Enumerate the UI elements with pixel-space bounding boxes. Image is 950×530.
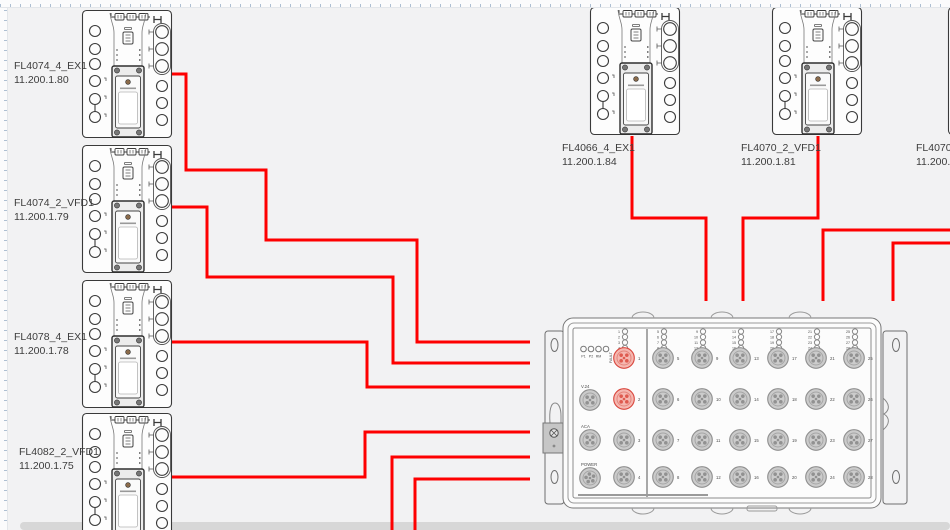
switch-port xyxy=(580,468,601,489)
device-ip: 11.200.1.80 xyxy=(14,73,87,87)
switch-text: P1 xyxy=(581,355,585,359)
horizontal-ruler xyxy=(0,0,950,8)
switch-text: 26 xyxy=(846,335,850,339)
switch-text: 21 xyxy=(808,330,812,334)
diagram-svg: P1P2RMFAULTV.24ACAPOWER12341234567856789… xyxy=(0,0,950,530)
device-ip: 11.200.1.78 xyxy=(14,344,87,358)
device-shape[interactable] xyxy=(83,11,172,138)
device-ip: 11.200.1.81 xyxy=(741,155,821,169)
switch-text: 25 xyxy=(846,330,850,334)
switch-text: 27 xyxy=(846,341,850,345)
cable[interactable] xyxy=(632,136,706,301)
switch-port xyxy=(580,430,601,451)
device-shape[interactable] xyxy=(591,8,680,135)
cable[interactable] xyxy=(415,479,530,530)
switch-text: 21 xyxy=(830,356,835,361)
device-label[interactable]: FL4074_2_VFD1 11.200.1.79 xyxy=(14,196,94,224)
switch-text: 22 xyxy=(830,397,835,402)
switch-text: 24 xyxy=(830,475,835,480)
switch-port xyxy=(580,390,601,411)
switch-text: ACA xyxy=(581,424,590,429)
switch-text: 3 xyxy=(618,341,620,345)
device-label[interactable]: FL4070_2_VFD1 11.200.1.81 xyxy=(741,141,821,169)
device-shape[interactable] xyxy=(83,146,172,273)
switch-text: 1 xyxy=(618,330,620,334)
switch-text: 28 xyxy=(868,475,873,480)
switch-shape[interactable]: P1P2RMFAULTV.24ACAPOWER12341234567856789… xyxy=(543,312,907,514)
switch-text: 18 xyxy=(770,335,774,339)
switch-text: 7 xyxy=(657,341,659,345)
device-name: FL4082_2_VFD1 xyxy=(19,445,99,459)
switch-text: 12 xyxy=(716,475,721,480)
switch-text: 10 xyxy=(716,397,721,402)
switch-text: 11 xyxy=(716,438,721,443)
switch-text: 11 xyxy=(694,341,698,345)
switch-left-bracket xyxy=(543,331,565,504)
cable[interactable] xyxy=(392,457,530,530)
switch-text: FAULT xyxy=(609,351,613,363)
device-name: FL4066_4_EX1 xyxy=(562,141,635,155)
switch-text: 13 xyxy=(754,356,759,361)
device-ip: 11.200.1 xyxy=(916,155,950,169)
device-shape[interactable] xyxy=(83,281,172,408)
switch-text: 25 xyxy=(868,356,873,361)
switch-text: 10 xyxy=(694,335,698,339)
switch-text: RM xyxy=(596,355,602,359)
switch-text: 20 xyxy=(792,475,797,480)
device-label[interactable]: FL4066_4_EX1 11.200.1.84 xyxy=(562,141,635,169)
switch-text: 9 xyxy=(696,330,698,334)
switch-text: 13 xyxy=(732,330,736,334)
switch-text: 2 xyxy=(618,335,620,339)
cable[interactable] xyxy=(172,432,530,477)
switch-text: 18 xyxy=(792,397,797,402)
switch-text: 6 xyxy=(657,335,659,339)
switch-right-bracket xyxy=(883,331,907,504)
switch-text: 15 xyxy=(754,438,759,443)
switch-text: 22 xyxy=(808,335,812,339)
cable[interactable] xyxy=(823,230,950,301)
switch-text: 14 xyxy=(732,335,736,339)
device-ip: 11.200.1.84 xyxy=(562,155,635,169)
device-name: FL4074_4_EX1 xyxy=(14,59,87,73)
switch-text: 23 xyxy=(830,438,835,443)
switch-text: 15 xyxy=(732,341,736,345)
switch-text: 17 xyxy=(792,356,797,361)
switch-text: 19 xyxy=(770,341,774,345)
switch-text: 26 xyxy=(868,397,873,402)
switch-text: POWER xyxy=(581,462,597,467)
switch-text: 23 xyxy=(808,341,812,345)
diagram-canvas: P1P2RMFAULTV.24ACAPOWER12341234567856789… xyxy=(0,0,950,530)
cable[interactable] xyxy=(893,243,950,301)
switch-text: 17 xyxy=(770,330,774,334)
device-name: FL4074_2_VFD1 xyxy=(14,196,94,210)
device-name: FL4070_2_VFD1 xyxy=(741,141,821,155)
device-label[interactable]: FL4078_4_EX1 11.200.1.78 xyxy=(14,330,87,358)
device-shape[interactable] xyxy=(773,8,862,135)
device-label[interactable]: FL4074_4_EX1 11.200.1.80 xyxy=(14,59,87,87)
cable[interactable] xyxy=(172,74,530,342)
cable[interactable] xyxy=(172,207,530,363)
device-name: FL4070_ xyxy=(916,141,950,155)
switch-text: P2 xyxy=(589,355,593,359)
switch-text: V.24 xyxy=(581,384,590,389)
switch-text: 16 xyxy=(754,475,759,480)
device-ip: 11.200.1.75 xyxy=(19,459,99,473)
switch-text: 27 xyxy=(868,438,873,443)
switch-text: 14 xyxy=(754,397,759,402)
switch-text: 19 xyxy=(792,438,797,443)
switch-text: 5 xyxy=(657,330,659,334)
device-label[interactable]: FL4082_2_VFD1 11.200.1.75 xyxy=(19,445,99,473)
vertical-ruler xyxy=(0,0,8,530)
device-name: FL4078_4_EX1 xyxy=(14,330,87,344)
device-ip: 11.200.1.79 xyxy=(14,210,94,224)
device-label[interactable]: FL4070_ 11.200.1 xyxy=(916,141,950,169)
